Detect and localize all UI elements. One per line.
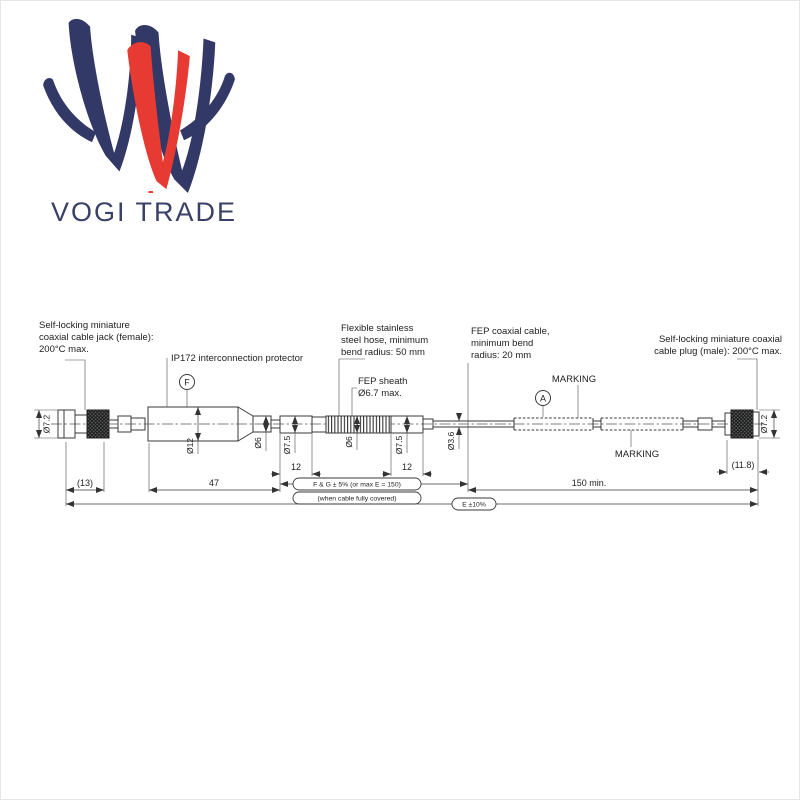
svg-text:Ø7.5: Ø7.5: [282, 436, 292, 455]
label-fep-cable-line2: minimum bend: [471, 338, 533, 349]
label-hose-line1: Flexible stainless: [341, 323, 414, 334]
knurl-grip: [731, 410, 753, 438]
page: VOGI TRADE: [0, 0, 800, 800]
knurl-grip: [87, 410, 109, 438]
svg-text:Ø6: Ø6: [344, 436, 354, 448]
dim-ferrule-left-od: Ø7.5: [282, 416, 295, 454]
label-plug-line2: cable plug (male): 200°C max.: [654, 346, 782, 357]
label-plug-line1: Self-locking miniature coaxial: [659, 334, 782, 345]
balloon-a-label: A: [540, 394, 546, 404]
dim-ferrule-left-len: 12: [271, 462, 321, 474]
label-hose-line3: bend radius: 50 mm: [341, 347, 425, 358]
svg-text:12: 12: [402, 462, 412, 472]
technical-drawing: F A Self-locking miniature coaxial cable…: [1, 301, 799, 516]
label-jack-line2: coaxial cable jack (female):: [39, 332, 154, 343]
dim-protector-len: 47: [149, 478, 280, 490]
label-marking-bottom: MARKING: [615, 449, 659, 460]
logo-mark-icon: [41, 17, 237, 193]
dim-cable-len: 150 min.: [468, 478, 758, 490]
leader-plug: [737, 359, 757, 410]
dim-jack-len: (13): [66, 478, 104, 490]
note-tolerance-fg: F & G ± 5% (or max E = 150): [280, 478, 468, 490]
dim-protector-od: Ø12: [185, 407, 198, 454]
svg-text:Ø7.2: Ø7.2: [41, 415, 51, 434]
dim-plug-len: (11.8): [717, 460, 769, 472]
label-jack-line1: Self-locking miniature: [39, 320, 130, 331]
svg-text:(11.8): (11.8): [732, 460, 755, 470]
brand-wordmark: VOGI TRADE: [47, 197, 241, 228]
svg-text:F & G ± 5% (or max E = 150): F & G ± 5% (or max E = 150): [313, 482, 401, 489]
leader-sheath: [352, 388, 357, 416]
label-jack-line3: 200°C max.: [39, 344, 89, 355]
ferrule-left: [280, 416, 312, 433]
svg-text:12: 12: [291, 462, 301, 472]
balloon-a: A: [536, 391, 551, 418]
label-marking-top: MARKING: [552, 374, 596, 385]
label-sheath-line1: FEP sheath: [358, 376, 407, 387]
label-fep-cable-line3: radius: 20 mm: [471, 350, 531, 361]
leader-jack: [65, 360, 85, 410]
hose-assembly: [280, 416, 433, 433]
svg-text:47: 47: [209, 478, 219, 488]
svg-text:E ±10%: E ±10%: [462, 502, 486, 509]
svg-text:150 min.: 150 min.: [572, 478, 607, 488]
balloon-f-label: F: [184, 378, 190, 388]
label-protector: IP172 interconnection protector: [171, 353, 303, 364]
label-sheath-line2: Ø6.7 max.: [358, 388, 402, 399]
dim-cable-od: Ø3.6: [446, 413, 459, 450]
svg-text:Ø12: Ø12: [185, 438, 195, 454]
label-fep-cable-line1: FEP coaxial cable,: [471, 326, 550, 337]
balloon-f: F: [180, 375, 195, 408]
svg-text:Ø7.5: Ø7.5: [394, 436, 404, 455]
svg-text:Ø6: Ø6: [253, 437, 263, 449]
svg-text:Ø3.6: Ø3.6: [446, 432, 456, 451]
label-hose-line2: steel hose, minimum: [341, 335, 428, 346]
svg-text:(when cable fully covered): (when cable fully covered): [318, 496, 397, 503]
corrugated-hose: [326, 416, 391, 433]
dim-neck-od: Ø6: [253, 416, 266, 451]
dim-ferrule-right-len: 12: [382, 462, 432, 474]
dim-plug-od: Ø7.2: [759, 410, 780, 438]
svg-text:(13): (13): [77, 478, 93, 488]
note-coverage: (when cable fully covered): [293, 492, 421, 504]
svg-text:Ø7.2: Ø7.2: [759, 415, 769, 434]
dim-ferrule-right-od: Ø7.5: [394, 416, 407, 454]
